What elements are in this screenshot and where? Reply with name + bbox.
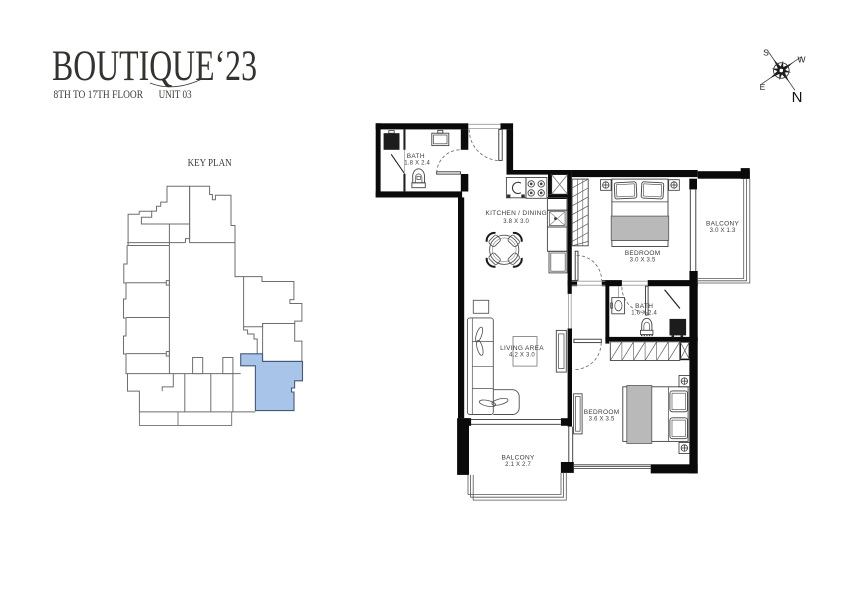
- svg-text:1.8 X 2.4: 1.8 X 2.4: [404, 160, 430, 166]
- svg-text:3.0 X 3.5: 3.0 X 3.5: [630, 258, 656, 264]
- svg-text:BALCONY: BALCONY: [502, 455, 536, 462]
- svg-text:3.8 X 3.0: 3.8 X 3.0: [503, 219, 529, 225]
- svg-text:LIVING AREA: LIVING AREA: [500, 345, 544, 352]
- svg-text:S: S: [763, 47, 769, 57]
- svg-text:BEDROOM: BEDROOM: [625, 250, 661, 257]
- svg-text:BALCONY: BALCONY: [706, 220, 740, 227]
- svg-text:KITCHEN / DINING: KITCHEN / DINING: [485, 210, 547, 217]
- svg-text:4.2 X 3.0: 4.2 X 3.0: [509, 353, 535, 359]
- svg-text:3.0 X 1.3: 3.0 X 1.3: [710, 228, 736, 234]
- svg-text:8TH TO 17TH FLOOR: 8TH TO 17TH FLOOR: [54, 87, 144, 101]
- svg-text:2.1 X 2.7: 2.1 X 2.7: [505, 462, 531, 468]
- svg-text:BATH: BATH: [635, 303, 653, 310]
- svg-text:W: W: [797, 55, 805, 65]
- svg-text:KEY PLAN: KEY PLAN: [188, 158, 232, 169]
- svg-text:N: N: [792, 89, 803, 106]
- svg-text:1.6 X 2.4: 1.6 X 2.4: [631, 311, 657, 317]
- svg-text:BOUTIQUE‘23: BOUTIQUE‘23: [52, 43, 257, 90]
- svg-text:E: E: [760, 82, 766, 92]
- svg-text:BATH: BATH: [407, 153, 425, 160]
- svg-text:BEDROOM: BEDROOM: [584, 409, 620, 416]
- svg-text:UNIT 03: UNIT 03: [159, 87, 192, 101]
- svg-text:3.6 X 3.5: 3.6 X 3.5: [589, 416, 615, 422]
